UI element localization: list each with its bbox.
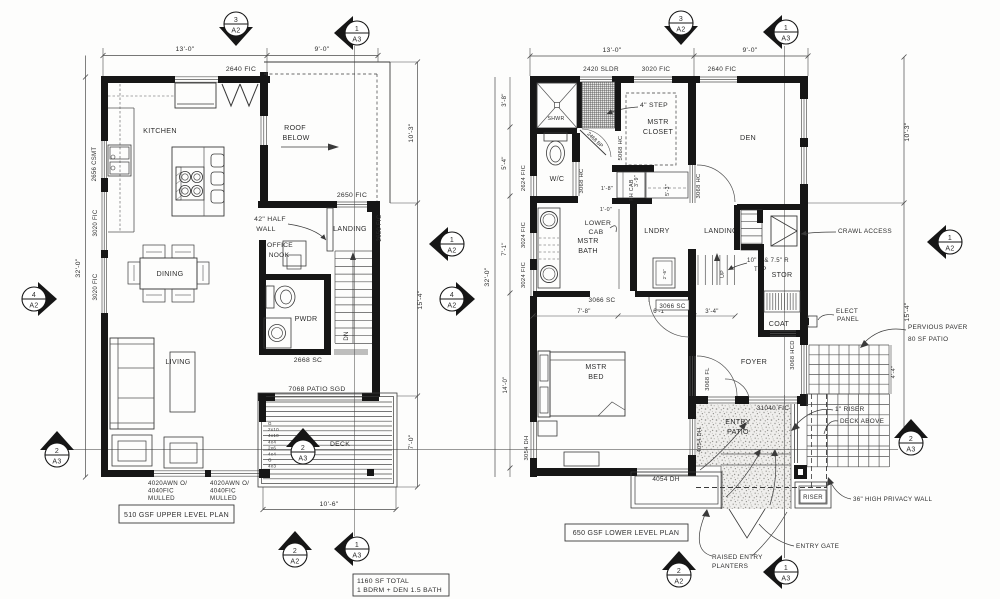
svg-text:1: 1 xyxy=(355,26,359,33)
svg-text:3024 FIC: 3024 FIC xyxy=(521,262,527,288)
svg-text:13'-0": 13'-0" xyxy=(602,47,621,54)
svg-text:DN: DN xyxy=(344,331,350,340)
svg-text:MSTR: MSTR xyxy=(647,118,668,126)
svg-text:A2: A2 xyxy=(945,246,954,253)
svg-text:FOYER: FOYER xyxy=(741,357,767,366)
svg-text:1: 1 xyxy=(784,25,788,32)
svg-text:4054 DH: 4054 DH xyxy=(652,476,679,483)
svg-text:1'-0": 1'-0" xyxy=(600,207,612,213)
svg-text:9'-0": 9'-0" xyxy=(314,46,329,53)
svg-text:LANDING: LANDING xyxy=(333,225,367,233)
svg-text:MULLED: MULLED xyxy=(148,495,175,502)
svg-text:A2: A2 xyxy=(29,303,38,310)
svg-text:13'-0": 13'-0" xyxy=(175,46,194,53)
svg-text:2420 SLDR: 2420 SLDR xyxy=(583,66,619,73)
svg-text:1: 1 xyxy=(450,237,454,244)
svg-text:32'-0": 32'-0" xyxy=(484,267,491,286)
svg-text:7'-1": 7'-1" xyxy=(502,242,508,255)
svg-text:BELOW: BELOW xyxy=(282,134,309,142)
svg-text:2: 2 xyxy=(677,568,681,575)
svg-text:G: G xyxy=(268,421,272,426)
svg-text:10" T & 7.5" R: 10" T & 7.5" R xyxy=(747,258,789,264)
svg-text:4x4: 4x4 xyxy=(268,439,276,444)
svg-text:A3: A3 xyxy=(781,36,790,43)
svg-text:4x4: 4x4 xyxy=(268,452,276,457)
svg-text:A3: A3 xyxy=(352,37,361,44)
svg-text:4020AWN O/: 4020AWN O/ xyxy=(148,480,187,487)
svg-text:2650 FIC: 2650 FIC xyxy=(377,214,383,241)
svg-text:1: 1 xyxy=(784,565,788,572)
svg-text:4040FIC: 4040FIC xyxy=(210,488,236,495)
svg-text:CAB: CAB xyxy=(589,229,604,236)
svg-text:A2: A2 xyxy=(447,248,456,255)
svg-text:10'-6": 10'-6" xyxy=(319,501,338,508)
svg-text:OFFICE: OFFICE xyxy=(267,242,293,249)
svg-text:G: G xyxy=(268,458,272,463)
svg-text:3054 DH: 3054 DH xyxy=(524,436,530,461)
svg-text:2'-6": 2'-6" xyxy=(662,269,667,280)
svg-text:W/C: W/C xyxy=(550,175,565,183)
svg-text:A3: A3 xyxy=(906,447,915,454)
svg-text:3066 SC: 3066 SC xyxy=(589,297,616,304)
svg-text:36" HIGH PRIVACY WALL: 36" HIGH PRIVACY WALL xyxy=(853,496,932,503)
svg-text:4x10: 4x10 xyxy=(268,433,279,438)
svg-text:PWDR: PWDR xyxy=(295,315,318,323)
svg-text:DECK ABOVE: DECK ABOVE xyxy=(840,418,884,425)
svg-text:STOR: STOR xyxy=(772,271,793,279)
svg-text:42" HALF: 42" HALF xyxy=(254,216,286,223)
svg-text:PLANTERS: PLANTERS xyxy=(712,563,748,570)
svg-text:PERVIOUS PAVER: PERVIOUS PAVER xyxy=(908,324,968,331)
svg-text:4: 4 xyxy=(450,292,454,299)
svg-text:1 BDRM + DEN 1.5 BATH: 1 BDRM + DEN 1.5 BATH xyxy=(357,587,442,594)
svg-text:2668 SC: 2668 SC xyxy=(294,357,323,364)
svg-text:3020 FIC: 3020 FIC xyxy=(93,209,99,236)
svg-text:4x3: 4x3 xyxy=(268,464,276,469)
svg-text:A3: A3 xyxy=(781,576,790,583)
svg-text:A3: A3 xyxy=(352,553,361,560)
svg-text:NOOK: NOOK xyxy=(269,252,290,259)
svg-text:2: 2 xyxy=(909,436,913,443)
svg-text:32'-0": 32'-0" xyxy=(75,258,82,277)
svg-text:A3: A3 xyxy=(298,456,307,463)
svg-text:2: 2 xyxy=(293,548,297,555)
svg-text:3'-9": 3'-9" xyxy=(634,175,640,187)
svg-text:3020 FIC: 3020 FIC xyxy=(642,66,671,73)
svg-text:LNDRY: LNDRY xyxy=(644,227,669,235)
svg-text:10'-3": 10'-3" xyxy=(408,123,415,142)
svg-text:2640 FIC: 2640 FIC xyxy=(708,66,737,73)
svg-text:ROOF: ROOF xyxy=(284,124,306,132)
svg-text:ELECT: ELECT xyxy=(836,308,858,315)
svg-text:MSTR: MSTR xyxy=(585,363,606,371)
svg-text:4'-4": 4'-4" xyxy=(891,366,897,379)
svg-text:1: 1 xyxy=(948,235,952,242)
svg-text:1'-8": 1'-8" xyxy=(601,186,613,192)
svg-text:A2: A2 xyxy=(447,303,456,310)
svg-text:MULLED: MULLED xyxy=(210,495,237,502)
svg-text:SHWR: SHWR xyxy=(547,116,564,122)
svg-text:LOWER: LOWER xyxy=(585,220,611,227)
svg-text:WALL: WALL xyxy=(256,226,275,233)
svg-text:3024 FIC: 3024 FIC xyxy=(521,222,527,248)
svg-text:9'-0": 9'-0" xyxy=(742,47,757,54)
svg-text:A2: A2 xyxy=(231,28,240,35)
svg-text:4054 DH: 4054 DH xyxy=(697,428,703,453)
svg-text:7'-8": 7'-8" xyxy=(577,309,590,315)
svg-text:KITCHEN: KITCHEN xyxy=(143,126,177,135)
svg-text:BATH: BATH xyxy=(578,247,598,255)
svg-text:RISER: RISER xyxy=(803,495,823,501)
svg-text:UP: UP xyxy=(720,270,726,278)
svg-text:BED: BED xyxy=(588,373,604,381)
svg-text:RAISED ENTRY: RAISED ENTRY xyxy=(712,554,763,561)
svg-text:2624 FIC: 2624 FIC xyxy=(521,165,527,191)
svg-text:15'-4": 15'-4" xyxy=(904,302,911,321)
svg-text:3068 HCD: 3068 HCD xyxy=(790,340,796,369)
svg-text:4040FIC: 4040FIC xyxy=(148,488,174,495)
svg-text:4: 4 xyxy=(32,292,36,299)
svg-text:CLOSET: CLOSET xyxy=(643,128,674,136)
svg-text:2: 2 xyxy=(55,448,59,455)
svg-text:4020AWN O/: 4020AWN O/ xyxy=(210,480,249,487)
svg-text:3066 SC: 3066 SC xyxy=(659,303,685,310)
svg-text:DEN: DEN xyxy=(740,133,756,142)
svg-text:3'-8": 3'-8" xyxy=(502,93,508,106)
svg-text:10'-3": 10'-3" xyxy=(904,122,911,141)
svg-text:A2: A2 xyxy=(676,27,685,34)
svg-text:1: 1 xyxy=(355,542,359,549)
svg-text:650 GSF LOWER LEVEL PLAN: 650 GSF LOWER LEVEL PLAN xyxy=(573,530,680,537)
svg-text:3020 FIC: 3020 FIC xyxy=(93,273,99,300)
svg-text:3068 HC: 3068 HC xyxy=(579,169,585,194)
svg-text:1" RISER: 1" RISER xyxy=(835,406,865,413)
svg-text:2640 FIC: 2640 FIC xyxy=(226,66,256,73)
svg-text:DINING: DINING xyxy=(157,269,184,278)
svg-text:2: 2 xyxy=(301,445,305,452)
svg-text:2650 FIC: 2650 FIC xyxy=(337,192,367,199)
svg-text:5068 HC: 5068 HC xyxy=(618,136,624,161)
svg-text:A2: A2 xyxy=(674,579,683,586)
svg-text:LIVING: LIVING xyxy=(165,357,190,366)
svg-text:LANDING: LANDING xyxy=(704,227,738,235)
svg-text:510 GSF UPPER LEVEL PLAN: 510 GSF UPPER LEVEL PLAN xyxy=(124,512,229,519)
svg-text:MSTR: MSTR xyxy=(577,237,598,245)
svg-text:ENTRY: ENTRY xyxy=(725,418,750,426)
svg-text:DECK: DECK xyxy=(330,441,350,448)
svg-text:COAT: COAT xyxy=(769,320,790,328)
svg-text:15'-4": 15'-4" xyxy=(417,290,424,309)
svg-text:ENTRY GATE: ENTRY GATE xyxy=(796,543,839,550)
svg-text:3'-4": 3'-4" xyxy=(705,309,718,315)
svg-text:80 SF PATIO: 80 SF PATIO xyxy=(908,336,948,343)
svg-text:PANEL: PANEL xyxy=(837,316,859,323)
svg-text:2656 CSMT: 2656 CSMT xyxy=(92,147,98,182)
svg-text:5'-3": 5'-3" xyxy=(665,184,671,196)
svg-text:2x6: 2x6 xyxy=(268,445,276,450)
svg-text:3: 3 xyxy=(234,17,238,24)
svg-text:A2: A2 xyxy=(290,559,299,566)
svg-text:3: 3 xyxy=(679,16,683,23)
svg-text:PATIO: PATIO xyxy=(727,428,749,436)
svg-text:1160 SF TOTAL: 1160 SF TOTAL xyxy=(357,578,409,585)
svg-text:5'-4": 5'-4" xyxy=(502,156,508,169)
svg-text:3068 FL: 3068 FL xyxy=(705,367,711,391)
svg-text:3068 HC: 3068 HC xyxy=(696,174,702,199)
svg-text:7'-0": 7'-0" xyxy=(408,434,415,449)
svg-text:2x10: 2x10 xyxy=(268,427,279,432)
svg-text:CRAWL ACCESS: CRAWL ACCESS xyxy=(838,228,892,235)
svg-text:7068 PATIO SGD: 7068 PATIO SGD xyxy=(288,386,345,393)
svg-text:14'-0": 14'-0" xyxy=(503,376,509,393)
svg-text:A3: A3 xyxy=(52,459,61,466)
svg-text:4" STEP: 4" STEP xyxy=(640,102,668,109)
